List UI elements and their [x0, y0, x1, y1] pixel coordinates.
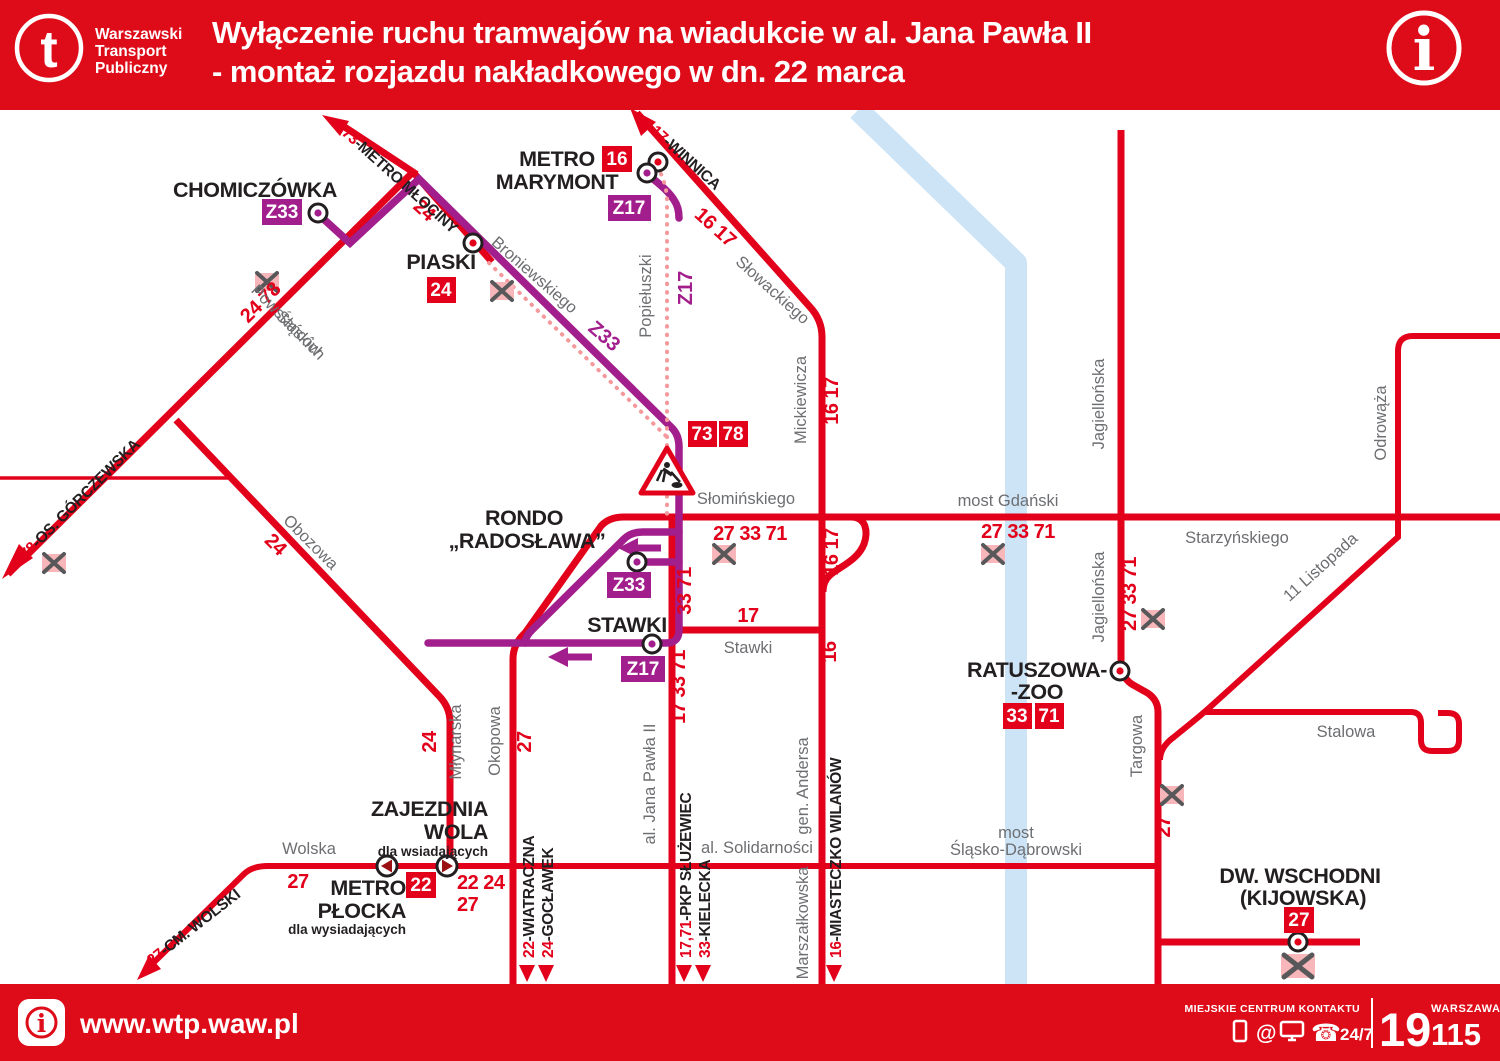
tram-detour-map-poster: Z33 16 Z17 24 73 78 Z33 Z17 33 71 22 27 …: [0, 0, 1500, 1061]
badge-73: 73: [688, 421, 717, 447]
closed-stop-icon: [981, 545, 1005, 563]
street-label-solidarnosci: al. Solidarności: [701, 839, 813, 857]
route-label-27: 27: [1153, 816, 1175, 838]
destination-label-17-71: 17,71-PKP SŁUŻEWIEC: [678, 792, 695, 958]
badge-78: 78: [719, 421, 748, 447]
poster-title-line-2: - montaż rozjazdu nakładkowego w dn. 22 …: [212, 54, 906, 89]
destination-24-name: -GOCŁAWEK: [540, 847, 557, 942]
stop-label-metro-marymont-1: METRO: [519, 147, 595, 171]
telephone-icon: ☎: [1311, 1020, 1341, 1047]
street-label-slominskiego: Słomińskiego: [697, 490, 795, 508]
stop-marker-zajezdnia-entry: [437, 856, 457, 876]
destination-label-24: 24-GOCŁAWEK: [540, 847, 557, 958]
badge-z33-label: Z33: [266, 202, 299, 223]
hotline-19: 19: [1379, 1003, 1431, 1056]
closed-stop-icon: [1160, 786, 1184, 804]
contact-center-label: MIEJSKIE CENTRUM KONTAKTU: [1185, 1003, 1360, 1015]
destination-24-number: 24: [540, 941, 557, 958]
wtp-logo-glyph: t: [40, 21, 57, 79]
badge-27-kijowska: 27: [1284, 907, 1314, 933]
destination-16-number: 16: [828, 941, 845, 958]
badge-73-label: 73: [691, 424, 712, 445]
street-label-mlynarska: Młynarska: [447, 704, 465, 780]
route-label-33-71: 33 71: [674, 567, 696, 615]
route-label-27-33-71: 27 33 71: [981, 521, 1055, 543]
badge-24-piaski: 24: [427, 277, 456, 303]
stop-label-zajezdnia-1: ZAJEZDNIA: [371, 797, 488, 821]
closed-stop-icon: [712, 545, 736, 563]
stop-label-plocka-2: PŁOCKA: [318, 899, 406, 923]
closed-stop-icon: [42, 554, 66, 572]
route-label-27: 27: [457, 894, 479, 916]
stop-label-rondo-1: RONDO: [485, 506, 563, 530]
badge-16-marymont: 16: [602, 146, 632, 172]
badge-71-label: 71: [1038, 706, 1060, 727]
route-label-17-33-71: 17 33 71: [668, 650, 690, 724]
destination-17-71-number: 17,71: [678, 920, 695, 958]
closed-stop-icon: [490, 282, 514, 300]
street-label-stawki: Stawki: [724, 639, 773, 657]
badge-16-label: 16: [606, 149, 627, 170]
footer-bar: i www.wtp.waw.pl MIEJSKIE CENTRUM KONTAK…: [0, 984, 1500, 1061]
at-sign-icon: @: [1256, 1022, 1276, 1045]
destination-label-22: 22-WIATRACZNA: [521, 835, 538, 958]
stop-label-wschodni-2: (KIJOWSKA): [1240, 886, 1366, 910]
route-label-27: 27: [287, 871, 309, 893]
map-canvas: Z33 16 Z17 24 73 78 Z33 Z17 33 71 22 27 …: [0, 0, 1500, 1061]
badge-27-label: 27: [1288, 910, 1309, 931]
stop-label-rondo-2: „RADOSŁAWA”: [449, 529, 606, 553]
destination-22-name: -WIATRACZNA: [521, 835, 538, 941]
badge-24-label: 24: [430, 280, 452, 301]
roadworks-worker-head: [664, 462, 670, 468]
route-label-27-33-71: 27 33 71: [1119, 557, 1141, 631]
info-icon-glyph: i: [1413, 15, 1436, 85]
street-label-odrowaza: Odrowąża: [1372, 385, 1390, 461]
footer-info-icon: i: [18, 999, 65, 1046]
street-label-stalowa: Stalowa: [1317, 723, 1377, 741]
street-label-most-gdanski: most Gdański: [958, 492, 1059, 510]
stop-note-zajezdnia: dla wsiadających: [378, 844, 488, 859]
badge-22-plocka: 22: [406, 872, 436, 898]
badge-z17-label: Z17: [613, 198, 646, 219]
stop-label-stawki: STAWKI: [587, 613, 667, 637]
closed-stop-icon: [1141, 610, 1165, 628]
street-label-okopowa: Okopowa: [486, 705, 504, 776]
street-label-jana-pawla: al. Jana Pawła II: [641, 723, 659, 844]
route-label-27: 27: [514, 731, 536, 753]
route-label-27-33-71: 27 33 71: [713, 523, 787, 545]
stop-marker-metro-marymont-purple: [638, 164, 656, 182]
street-label-targowa: Targowa: [1128, 714, 1146, 777]
stop-label-wschodni-1: DW. WSCHODNI: [1219, 864, 1380, 888]
brand-line-2: Transport: [95, 43, 166, 60]
route-label-z17: Z17: [675, 271, 697, 305]
badge-33-ratuszowa: 33: [1003, 703, 1032, 729]
brand-line-3: Publiczny: [95, 60, 168, 77]
destination-22-number: 22: [521, 941, 538, 958]
street-label-jagiellonska: Jagiellońska: [1090, 358, 1108, 450]
badge-z17-label: Z17: [627, 659, 660, 680]
stop-label-ratuszowa-1: RATUSZOWA-: [967, 658, 1107, 682]
hotline-115: 115: [1431, 1017, 1481, 1052]
badge-z33-label: Z33: [613, 575, 646, 596]
route-label-17: 17: [737, 605, 759, 627]
destination-label-16: 16-MIASTECZKO WILANÓW: [827, 757, 845, 958]
street-label-wolska: Wolska: [282, 840, 337, 858]
stop-note-plocka: dla wysiadających: [288, 922, 406, 937]
street-label-gen-andersa: gen. Andersa: [794, 737, 812, 835]
badge-33-label: 33: [1006, 706, 1027, 727]
badge-z17-stawki: Z17: [621, 656, 665, 682]
roadworks-mound: [672, 482, 683, 488]
stop-marker-rondo-radoslawa: [628, 553, 646, 571]
destination-17-71-name: -PKP SŁUŻEWIEC: [678, 792, 695, 920]
website-url[interactable]: www.wtp.waw.pl: [79, 1008, 299, 1039]
stop-marker-chomiczowka: [309, 204, 327, 222]
street-label-marszalkowska: Marszałkowska: [794, 866, 812, 980]
availability-label: 24/7: [1340, 1025, 1373, 1044]
street-label-most-slasko-2: Śląsko-Dąbrowski: [950, 840, 1082, 859]
destination-16-name: -MIASTECZKO WILANÓW: [827, 757, 845, 941]
header-bar: t Warszawski Transport Publiczny Wyłącze…: [0, 0, 1500, 110]
stop-marker-dw-wschodni: [1289, 933, 1307, 951]
street-label-popieluszki: Popiełuszki: [637, 254, 655, 337]
badge-z17-marymont: Z17: [608, 195, 651, 221]
destination-33-name: -KIELECKA: [697, 860, 714, 942]
hotline-city: WARSZAWA: [1431, 1003, 1500, 1015]
street-label-most-slasko-1: most: [998, 824, 1034, 842]
street-label-mickiewicza: Mickiewicza: [792, 355, 810, 444]
street-label-starzynskiego: Starzyńskiego: [1185, 529, 1289, 547]
street-label-jagiellonska: Jagiellońska: [1090, 551, 1108, 643]
stop-marker-zajezdnia-exit: [377, 856, 397, 876]
route-label-16-17: 16 17: [821, 528, 843, 576]
destination-33-number: 33: [697, 941, 714, 958]
footer-info-glyph: i: [37, 1009, 47, 1038]
stop-label-zajezdnia-2: WOLA: [424, 820, 488, 844]
badge-z33-rondo: Z33: [607, 572, 651, 598]
stop-label-chomiczowka: CHOMICZÓWKA: [173, 177, 337, 202]
stop-label-ratuszowa-2: -ZOO: [1011, 680, 1063, 704]
route-label-22-24: 22 24: [457, 872, 506, 894]
destination-label-33: 33-KIELECKA: [697, 860, 714, 958]
stop-label-piaski: PIASKI: [406, 250, 475, 274]
badge-71-ratuszowa: 71: [1035, 703, 1064, 729]
route-label-16-17: 16 17: [821, 377, 843, 425]
brand-line-1: Warszawski: [95, 26, 182, 43]
closed-stop-icon: [1281, 954, 1315, 978]
badge-z33-chomiczowka: Z33: [262, 199, 302, 225]
stop-label-metro-marymont-2: MARYMONT: [496, 170, 619, 194]
stop-label-plocka-1: METRO: [330, 876, 406, 900]
badge-78-label: 78: [722, 424, 743, 445]
route-label-24: 24: [419, 730, 441, 753]
stop-marker-stawki: [643, 635, 661, 653]
badge-22-label: 22: [410, 875, 431, 896]
route-label-16: 16: [819, 641, 841, 663]
stop-marker-ratuszowa-zoo: [1111, 662, 1129, 680]
poster-title-line-1: Wyłączenie ruchu tramwajów na wiadukcie …: [212, 15, 1092, 50]
